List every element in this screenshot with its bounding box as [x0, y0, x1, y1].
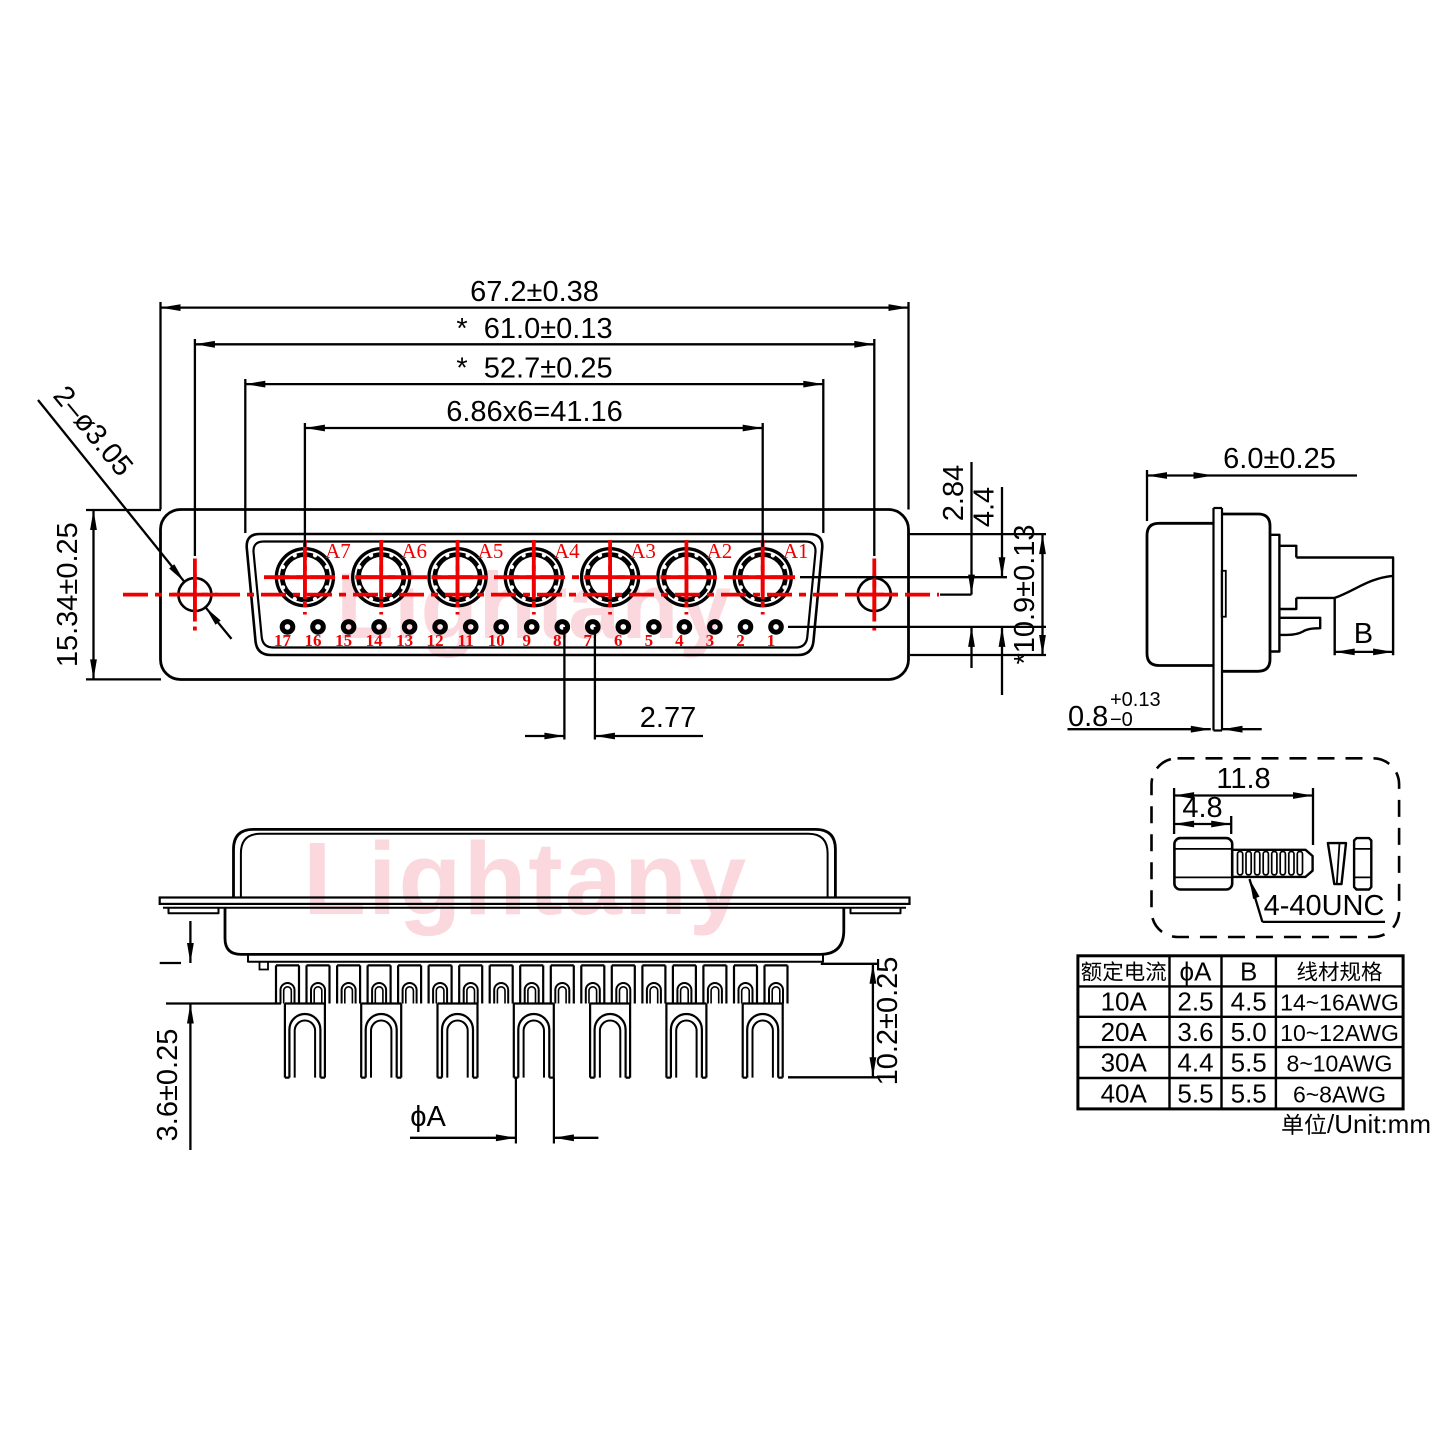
- svg-text:7: 7: [584, 631, 593, 650]
- svg-text:10: 10: [488, 631, 505, 650]
- svg-text:13: 13: [396, 631, 413, 650]
- svg-text:2.77: 2.77: [640, 702, 696, 734]
- svg-text:5.0: 5.0: [1231, 1017, 1267, 1047]
- svg-text:5.5: 5.5: [1231, 1079, 1267, 1109]
- svg-text:11: 11: [458, 631, 474, 650]
- svg-text:Lightany: Lightany: [303, 821, 748, 936]
- svg-text:4: 4: [675, 631, 684, 650]
- svg-text:30A: 30A: [1101, 1048, 1148, 1078]
- svg-text:16: 16: [305, 631, 322, 650]
- svg-text:10~12AWG: 10~12AWG: [1280, 1020, 1399, 1046]
- svg-text:A3: A3: [630, 539, 656, 563]
- svg-text:11.8: 11.8: [1216, 763, 1270, 795]
- svg-text:A2: A2: [707, 539, 733, 563]
- svg-text:14~16AWG: 14~16AWG: [1280, 990, 1399, 1016]
- svg-text:4-40UNC: 4-40UNC: [1264, 890, 1385, 922]
- svg-text:5.5: 5.5: [1177, 1079, 1213, 1109]
- svg-text:17: 17: [274, 631, 292, 650]
- svg-text:3.6: 3.6: [1177, 1017, 1213, 1047]
- svg-text:*10.9±0.13: *10.9±0.13: [1009, 524, 1041, 664]
- svg-text:10A: 10A: [1101, 987, 1148, 1017]
- svg-text:4.8: 4.8: [1182, 792, 1222, 824]
- svg-text:6: 6: [614, 631, 623, 650]
- svg-text:A1: A1: [783, 539, 809, 563]
- svg-text:2.84: 2.84: [938, 465, 970, 521]
- svg-text:ϕA: ϕA: [410, 1101, 446, 1133]
- svg-text:40A: 40A: [1101, 1079, 1148, 1109]
- svg-text:12: 12: [427, 631, 444, 650]
- svg-text:* 61.0±0.13: * 61.0±0.13: [456, 313, 612, 345]
- svg-text:6.0±0.25: 6.0±0.25: [1223, 443, 1336, 475]
- svg-text:14: 14: [366, 631, 384, 650]
- svg-text:2.5: 2.5: [1177, 987, 1213, 1017]
- svg-text:B: B: [1354, 618, 1373, 650]
- svg-text:5: 5: [645, 631, 654, 650]
- svg-text:67.2±0.38: 67.2±0.38: [470, 276, 599, 308]
- svg-text:8: 8: [553, 631, 562, 650]
- svg-text:15: 15: [335, 631, 352, 650]
- svg-text:20A: 20A: [1101, 1017, 1148, 1047]
- svg-text:8~10AWG: 8~10AWG: [1287, 1051, 1393, 1077]
- svg-text:−0: −0: [1110, 709, 1133, 731]
- svg-text:A6: A6: [401, 539, 427, 563]
- svg-text:5.5: 5.5: [1231, 1048, 1267, 1078]
- svg-text:6.86x6=41.16: 6.86x6=41.16: [446, 396, 623, 428]
- svg-text:ϕA: ϕA: [1180, 957, 1213, 987]
- svg-text:A4: A4: [554, 539, 580, 563]
- svg-text:4.4: 4.4: [969, 487, 1001, 527]
- svg-text:1: 1: [767, 631, 776, 650]
- svg-text:4.5: 4.5: [1231, 987, 1267, 1017]
- svg-text:B: B: [1240, 957, 1257, 987]
- svg-text:* 52.7±0.25: * 52.7±0.25: [456, 353, 612, 385]
- svg-text:3.6±0.25: 3.6±0.25: [152, 1029, 184, 1142]
- svg-text:A7: A7: [325, 539, 351, 563]
- svg-text:10.2±0.25: 10.2±0.25: [872, 957, 904, 1086]
- svg-text:+0.13: +0.13: [1110, 689, 1161, 711]
- svg-text:2: 2: [736, 631, 745, 650]
- svg-text:/Unit:mm: /Unit:mm: [1327, 1109, 1431, 1139]
- svg-text:A5: A5: [478, 539, 504, 563]
- svg-text:9: 9: [522, 631, 531, 650]
- svg-text:15.34±0.25: 15.34±0.25: [52, 522, 84, 667]
- svg-text:0.8: 0.8: [1068, 701, 1108, 733]
- svg-text:4.4: 4.4: [1177, 1048, 1213, 1078]
- svg-text:6~8AWG: 6~8AWG: [1293, 1082, 1386, 1108]
- svg-text:3: 3: [706, 631, 715, 650]
